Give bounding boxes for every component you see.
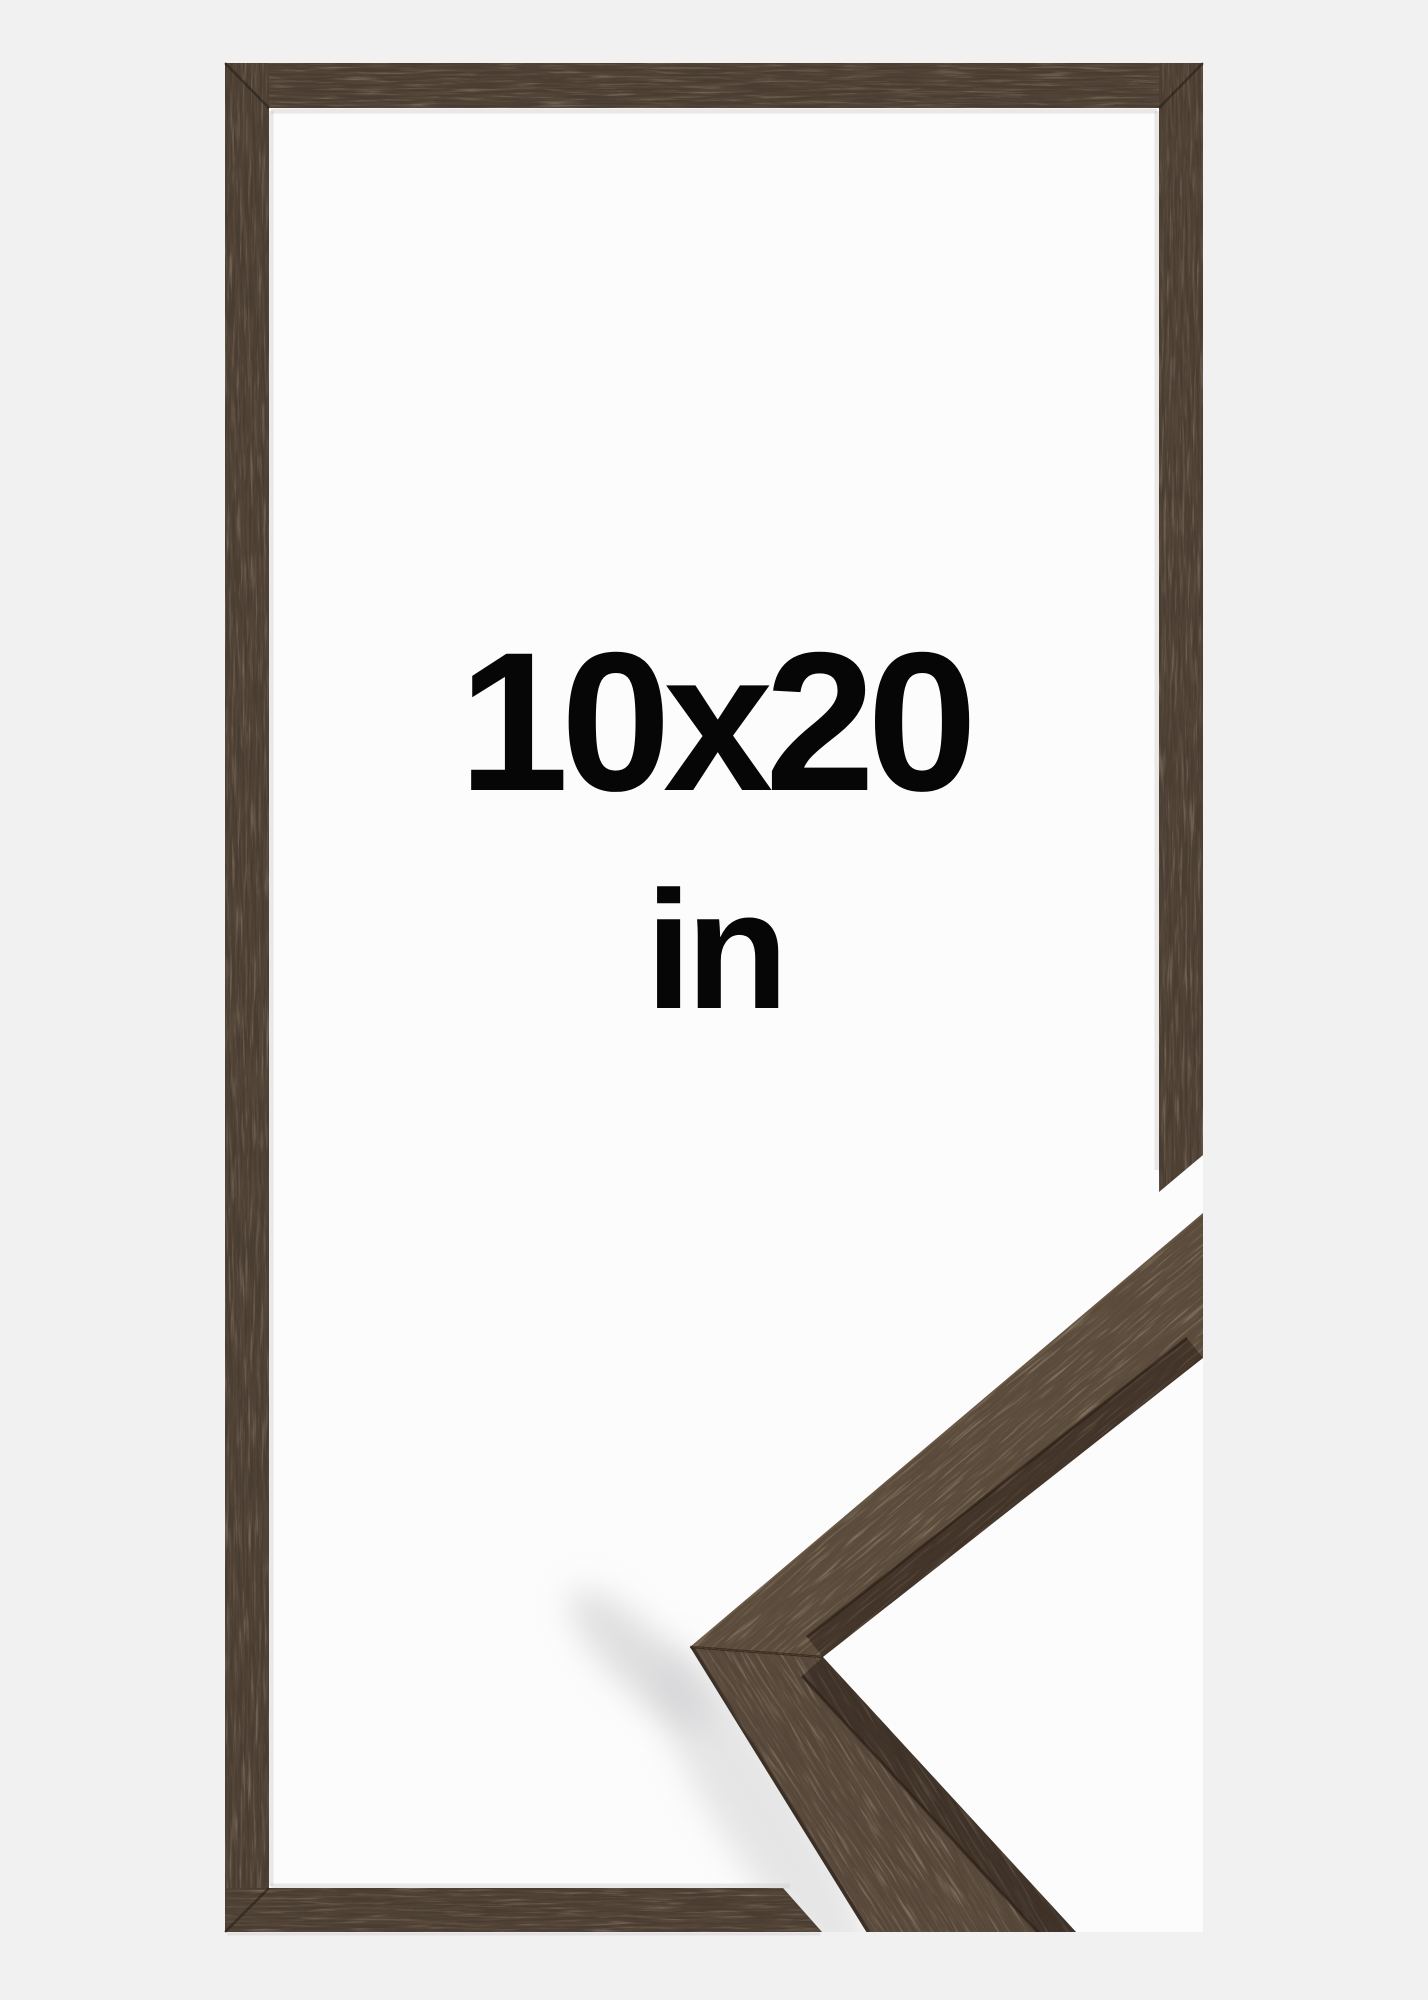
size-label: 10x20 bbox=[459, 611, 970, 832]
frame-top-bar bbox=[225, 63, 1203, 108]
frame-left-bar bbox=[225, 63, 269, 1932]
product-photo-stage: 10x20 in bbox=[0, 0, 1428, 2000]
unit-label: in bbox=[645, 856, 782, 1044]
product-image: 10x20 in bbox=[0, 0, 1428, 2000]
frame-right-bar bbox=[1159, 63, 1203, 1193]
